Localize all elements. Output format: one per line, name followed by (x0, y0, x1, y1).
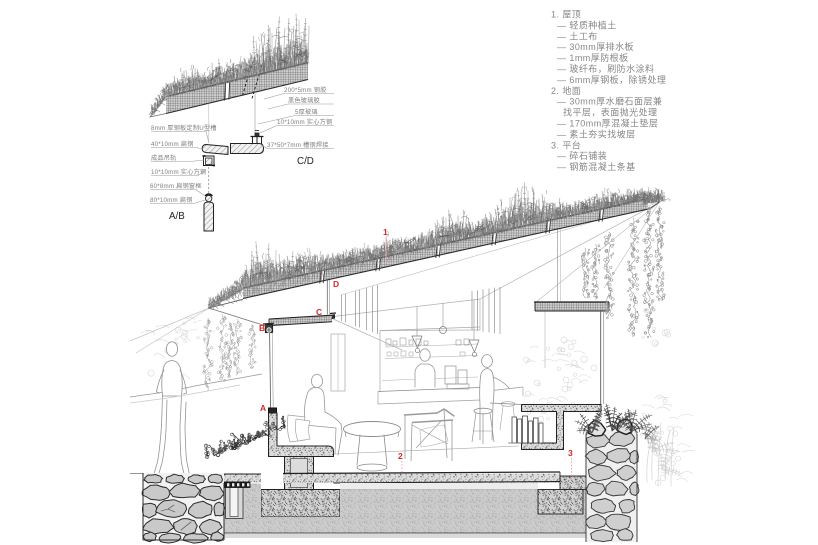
svg-text:60*8mm 扁钢窗框: 60*8mm 扁钢窗框 (150, 182, 202, 190)
svg-text:10*10mm 实心方钢: 10*10mm 实心方钢 (277, 118, 332, 126)
svg-text:80*10mm 扁钢: 80*10mm 扁钢 (150, 196, 193, 204)
svg-text:1. 屋顶: 1. 屋顶 (551, 10, 581, 20)
svg-text:D: D (333, 279, 339, 289)
svg-text:— 土工布: — 土工布 (557, 30, 598, 41)
svg-text:— 轻质种植土: — 轻质种植土 (557, 19, 617, 30)
svg-text:2. 地面: 2. 地面 (551, 85, 581, 96)
svg-text:— 170mm厚混凝土垫层: — 170mm厚混凝土垫层 (557, 118, 658, 129)
svg-text:A/B: A/B (169, 211, 185, 222)
svg-text:8mm 厚钢板定制U型槽: 8mm 厚钢板定制U型槽 (151, 124, 217, 132)
svg-text:— 玻纤布，刷防水涂料: — 玻纤布，刷防水涂料 (557, 63, 654, 74)
svg-text:5厚玻璃: 5厚玻璃 (295, 108, 318, 116)
svg-text:3: 3 (568, 448, 573, 458)
svg-text:— 30mm厚水磨石面层兼: — 30mm厚水磨石面层兼 (557, 96, 662, 107)
svg-text:C/D: C/D (297, 156, 314, 167)
svg-text:2: 2 (398, 451, 403, 461)
svg-text:— 碎石铺装: — 碎石铺装 (557, 150, 607, 161)
svg-text:黑色玻璃胶: 黑色玻璃胶 (288, 97, 320, 105)
svg-text:B: B (259, 323, 265, 333)
svg-text:— 30mm厚排水板: — 30mm厚排水板 (557, 41, 634, 52)
svg-text:找平层，表面抛光处理: 找平层，表面抛光处理 (563, 107, 658, 118)
svg-text:3. 平台: 3. 平台 (551, 139, 581, 150)
svg-text:— 素土夯实找坡层: — 素土夯实找坡层 (557, 128, 636, 139)
svg-text:10*10mm 实心方钢: 10*10mm 实心方钢 (151, 168, 206, 176)
svg-text:200*5mm 钢胶: 200*5mm 钢胶 (284, 86, 327, 94)
svg-text:成品吊轨: 成品吊轨 (151, 154, 177, 162)
svg-text:— 6mm厚钢板，除锈处理: — 6mm厚钢板，除锈处理 (557, 74, 666, 85)
svg-text:— 1mm厚防根板: — 1mm厚防根板 (557, 52, 629, 63)
svg-text:A: A (260, 403, 266, 413)
svg-text:37*50*7mm 槽钢焊接: 37*50*7mm 槽钢焊接 (267, 141, 329, 149)
svg-text:C: C (316, 307, 322, 317)
svg-text:40*10mm 扁钢: 40*10mm 扁钢 (151, 140, 194, 148)
svg-text:— 钢筋混凝土条基: — 钢筋混凝土条基 (557, 161, 636, 172)
svg-text:1: 1 (383, 227, 388, 237)
